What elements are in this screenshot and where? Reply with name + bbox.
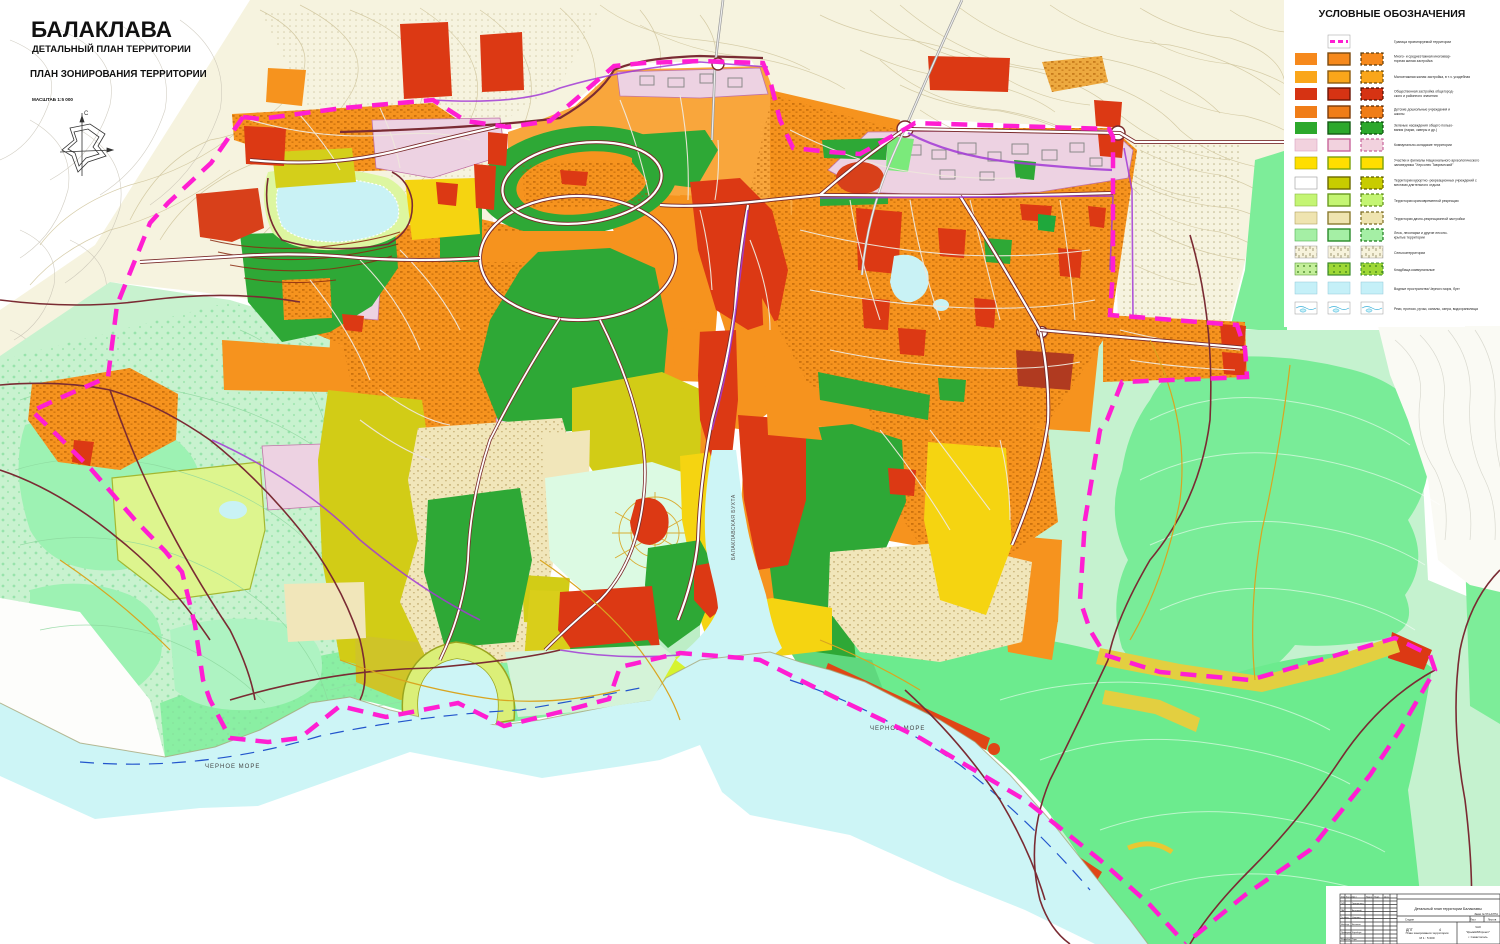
svg-text:Малоэтажная жилая застройка, в: Малоэтажная жилая застройка, в т.ч. усад…: [1394, 75, 1470, 79]
svg-text:Зеленые насаждения общего поль: Зеленые насаждения общего пользо-: [1394, 124, 1453, 128]
svg-text:ЧЕРНОЕ МОРЕ: ЧЕРНОЕ МОРЕ: [205, 764, 260, 770]
svg-text:Территории кратковременной рек: Территории кратковременной рекреации: [1394, 199, 1459, 203]
svg-text:Подп.: Подп.: [1374, 897, 1380, 899]
svg-text:Лист: Лист: [1352, 897, 1357, 899]
svg-text:Граница проектируемой территор: Граница проектируемой территории: [1394, 40, 1451, 44]
svg-text:вания (парки, скверы и др.): вания (парки, скверы и др.): [1394, 128, 1437, 132]
svg-text:Антоцкий: Антоцкий: [1352, 909, 1362, 912]
svg-text:ГАП: ГАП: [1341, 909, 1345, 912]
svg-text:Гл.спец.: Гл.спец.: [1341, 917, 1350, 919]
svg-text:Много- и среднеэтажная многокв: Много- и среднеэтажная многоквар-: [1394, 55, 1451, 59]
svg-text:местами длительного отдыха: местами длительного отдыха: [1394, 183, 1440, 187]
svg-text:Разработ.: Разработ.: [1341, 939, 1351, 941]
svg-text:Проверил: Проверил: [1341, 932, 1352, 934]
svg-text:Дата: Дата: [1384, 897, 1390, 899]
svg-text:Участки и филиалы Национальног: Участки и филиалы Национального археолог…: [1394, 159, 1479, 163]
svg-text:С: С: [84, 111, 89, 117]
svg-text:МАСШТАБ 1:5 000: МАСШТАБ 1:5 000: [32, 97, 73, 102]
svg-text:Детальный план территории Бала: Детальный план территории Балаклавы: [1414, 907, 1482, 911]
svg-text:ПЛАН ЗОНИРОВАНИЯ ТЕРРИТОРИИ: ПЛАН ЗОНИРОВАНИЯ ТЕРРИТОРИИ: [30, 69, 207, 80]
svg-text:Изм: Изм: [1341, 897, 1346, 899]
svg-text:Заказ № 574-А/ГПА: Заказ № 574-А/ГПА: [1474, 912, 1498, 916]
svg-text:№док: №док: [1366, 896, 1372, 899]
svg-text:Общественная застройка общегор: Общественная застройка общегород-: [1394, 90, 1454, 94]
svg-text:Коммунально-складские территор: Коммунально-складские территории: [1394, 143, 1452, 147]
svg-text:Нач.отд.: Нач.отд.: [1341, 924, 1350, 926]
svg-text:ского и районного значения: ского и районного значения: [1394, 94, 1438, 98]
svg-text:Листов: Листов: [1488, 918, 1497, 922]
svg-text:Тарн: Тарн: [1352, 939, 1358, 941]
svg-text:ДЕТАЛЬНЫЙ ПЛАН ТЕРРИТОРИИ: ДЕТАЛЬНЫЙ ПЛАН ТЕРРИТОРИИ: [32, 43, 191, 55]
svg-text:ЧАО: ЧАО: [1475, 925, 1482, 929]
svg-text:УСЛОВНЫЕ ОБОЗНАЧЕНИЯ: УСЛОВНЫЕ ОБОЗНАЧЕНИЯ: [1319, 8, 1466, 20]
svg-text:тирная жилая застройка: тирная жилая застройка: [1394, 59, 1433, 63]
svg-text:М 1 : 5 000: М 1 : 5 000: [1419, 936, 1434, 940]
svg-text:Кладбища коммунальные: Кладбища коммунальные: [1394, 268, 1435, 272]
svg-text:заповедника "Херсонес Тавричес: заповедника "Херсонес Таврический": [1394, 163, 1454, 167]
svg-text:План зонирования территории: План зонирования территории: [1406, 931, 1449, 935]
svg-text:крытые территории: крытые территории: [1394, 236, 1425, 240]
svg-text:Уварова: Уварова: [1352, 917, 1361, 919]
svg-text:Территории дачно-рекреационной: Территории дачно-рекреационной застройки: [1394, 217, 1465, 221]
svg-text:Территории курортно -рекреацио: Территории курортно -рекреационных учреж…: [1394, 179, 1477, 183]
svg-text:ГИП: ГИП: [1341, 903, 1346, 905]
svg-text:школы: школы: [1394, 112, 1405, 116]
svg-text:Водные пространства Черного мо: Водные пространства Черного моря, бухт: [1394, 287, 1460, 291]
svg-text:"КрымНИИпроект": "КрымНИИпроект": [1466, 930, 1490, 934]
svg-text:БАЛАКЛАВСКАЯ БУХТА: БАЛАКЛАВСКАЯ БУХТА: [731, 494, 737, 560]
svg-text:г. Севастополь: г. Севастополь: [1468, 935, 1488, 939]
svg-text:Беляева: Беляева: [1352, 924, 1361, 926]
svg-text:Детские дошкольные учреждения: Детские дошкольные учреждения и: [1394, 108, 1450, 112]
svg-text:Лист: Лист: [1470, 918, 1476, 922]
svg-text:Реки, протоки, ручьи, каналы,: Реки, протоки, ручьи, каналы, озера, вод…: [1394, 307, 1478, 311]
svg-text:БАЛАКЛАВА: БАЛАКЛАВА: [31, 17, 172, 42]
svg-text:Стадия: Стадия: [1405, 918, 1414, 922]
svg-text:Корабчук: Корабчук: [1352, 932, 1361, 934]
svg-text:Сельхозтерритории: Сельхозтерритории: [1394, 251, 1425, 255]
svg-text:Григорьянц: Григорьянц: [1352, 903, 1364, 905]
svg-text:Леса, лесопарки и другие лесоп: Леса, лесопарки и другие лесопо-: [1394, 231, 1448, 235]
